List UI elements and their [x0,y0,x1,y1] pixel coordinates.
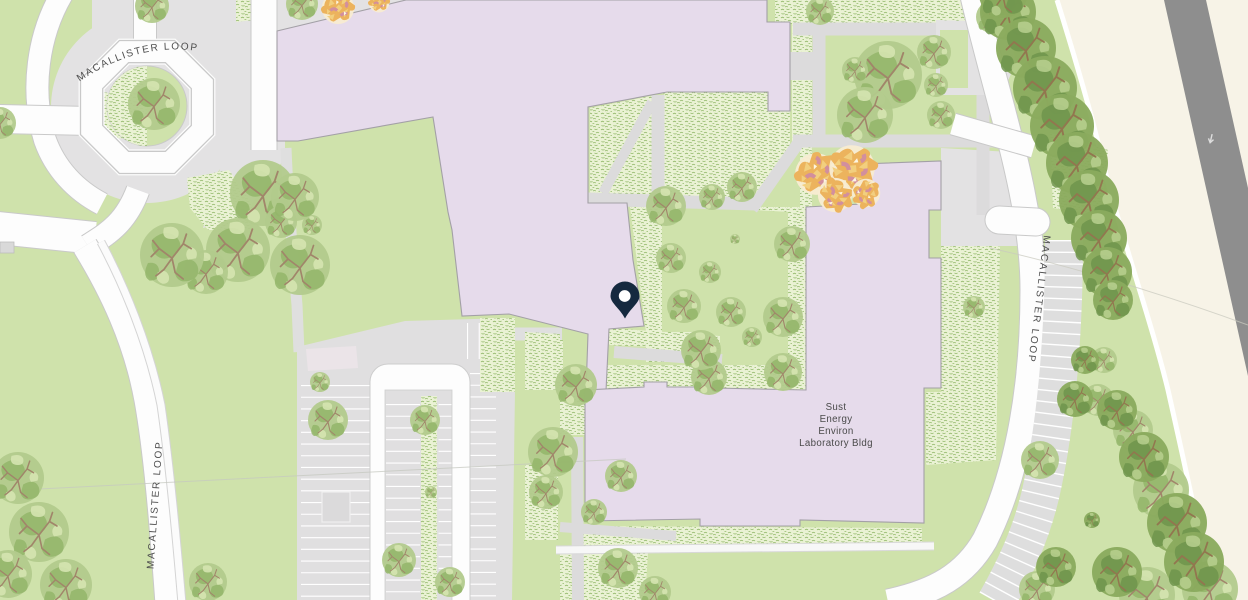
svg-text:Energy: Energy [820,414,853,425]
svg-text:Environ: Environ [818,426,853,437]
svg-text:Sust: Sust [826,402,847,413]
svg-text:Laboratory Bldg: Laboratory Bldg [799,438,873,449]
